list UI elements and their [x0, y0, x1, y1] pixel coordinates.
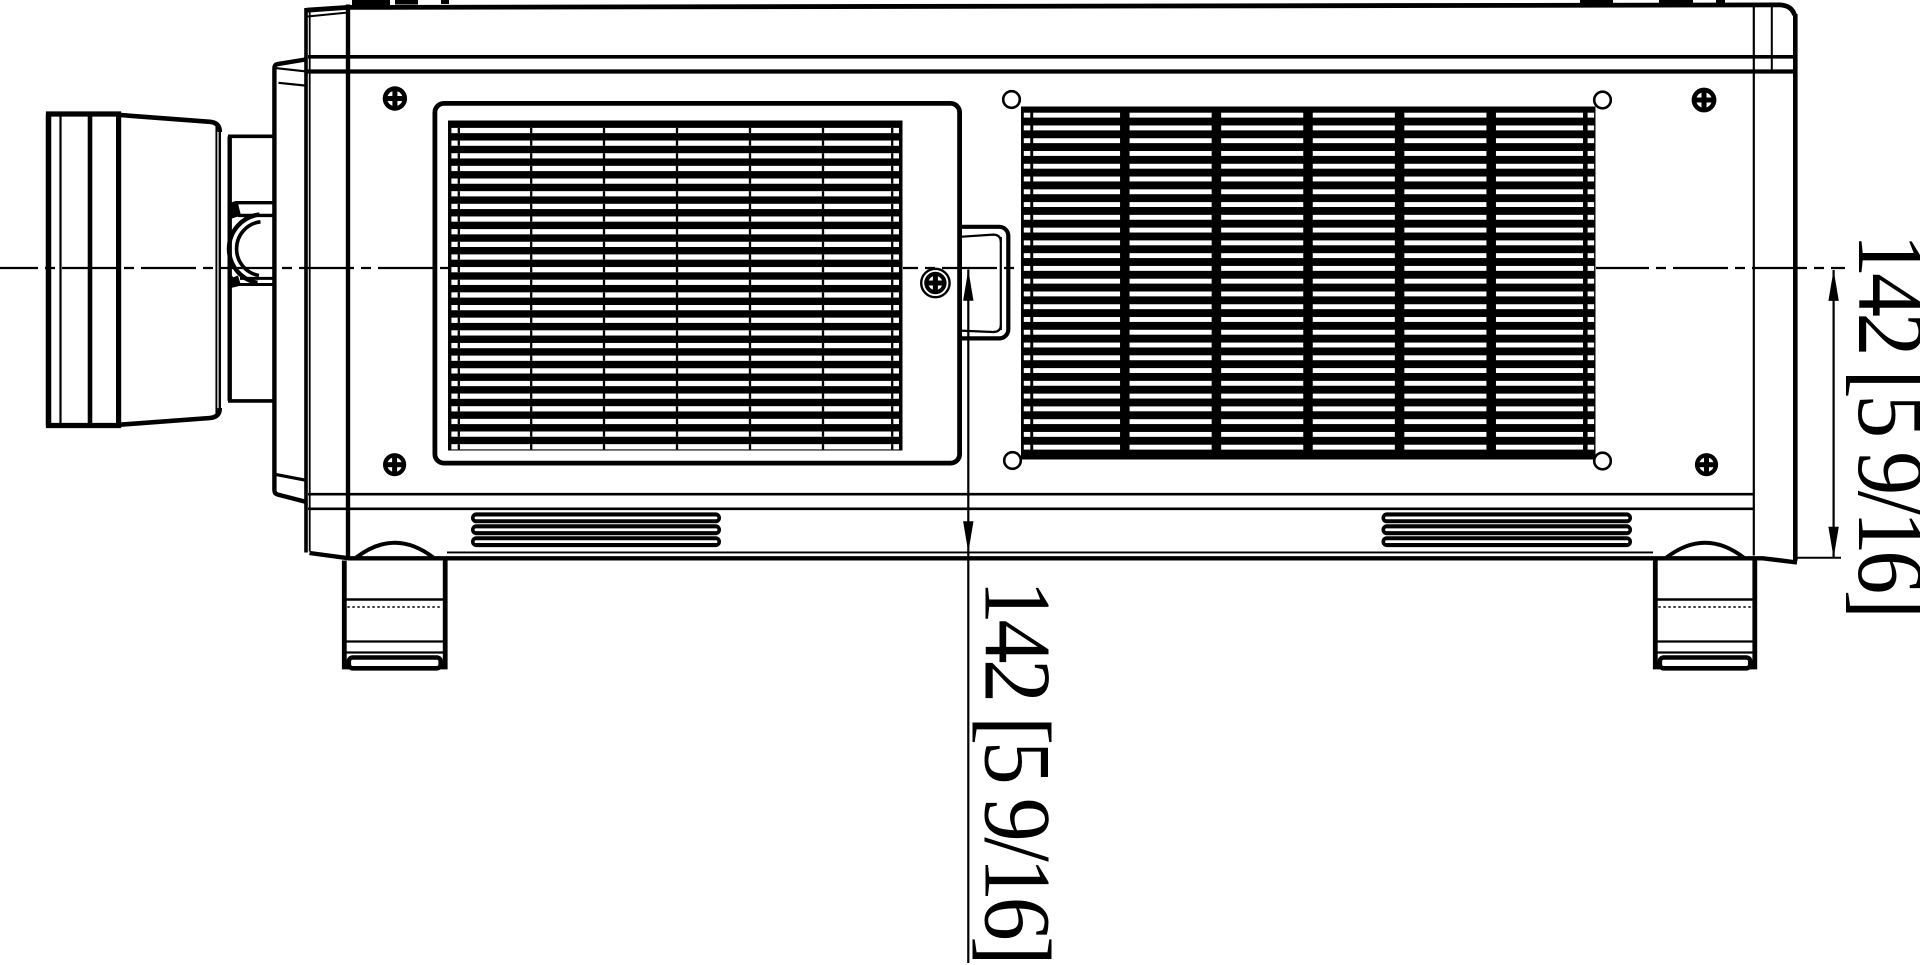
svg-text:142 [5 9/16]: 142 [5 9/16] [1838, 234, 1920, 615]
svg-text:142 [5 9/16]: 142 [5 9/16] [965, 580, 1071, 961]
